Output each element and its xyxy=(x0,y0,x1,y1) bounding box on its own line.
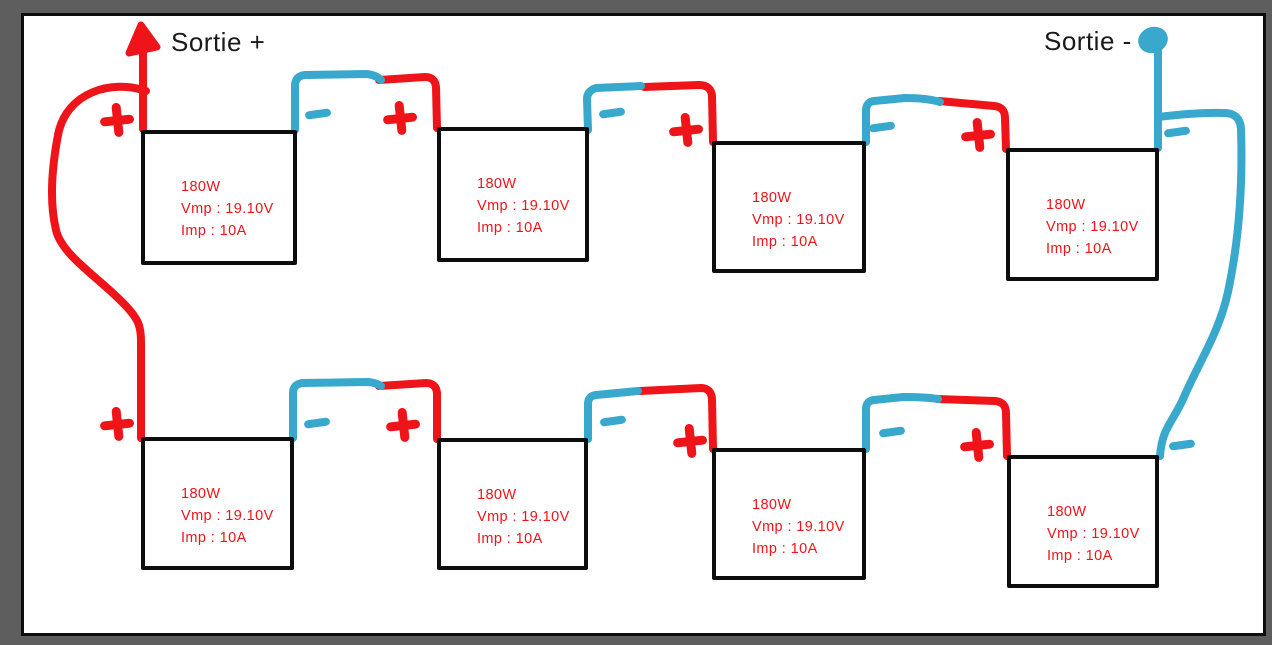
panel-spec: 180W Vmp : 19.10V Imp : 10A xyxy=(477,173,570,239)
panel-imp: Imp : 10A xyxy=(752,538,845,560)
plus-icon xyxy=(384,406,421,443)
panel-imp: Imp : 10A xyxy=(181,220,274,242)
panel-power: 180W xyxy=(477,173,570,195)
panel-spec: 180W Vmp : 19.10V Imp : 10A xyxy=(1047,501,1140,567)
panel-imp: Imp : 10A xyxy=(1047,545,1140,567)
plus-icon xyxy=(667,111,704,148)
panel-vmp: Vmp : 19.10V xyxy=(752,516,845,538)
panel-power: 180W xyxy=(1046,194,1139,216)
plus-icon xyxy=(381,99,418,136)
plus-icon xyxy=(98,405,135,442)
panel-spec: 180W Vmp : 19.10V Imp : 10A xyxy=(752,494,845,560)
panel-power: 180W xyxy=(1047,501,1140,523)
panel-vmp: Vmp : 19.10V xyxy=(752,209,845,231)
panel-power: 180W xyxy=(181,483,274,505)
panel-vmp: Vmp : 19.10V xyxy=(181,198,274,220)
panel-spec: 180W Vmp : 19.10V Imp : 10A xyxy=(181,483,274,549)
panel-imp: Imp : 10A xyxy=(477,528,570,550)
window-frame: Sortie + Sortie - 180W Vmp : 19.10V Imp … xyxy=(0,0,1272,645)
solar-panel-top-2: 180W Vmp : 19.10V Imp : 10A xyxy=(437,127,589,262)
panel-vmp: Vmp : 19.10V xyxy=(477,506,570,528)
panel-spec: 180W Vmp : 19.10V Imp : 10A xyxy=(1046,194,1139,260)
panel-power: 180W xyxy=(181,176,274,198)
panel-spec: 180W Vmp : 19.10V Imp : 10A xyxy=(752,187,845,253)
plus-icon xyxy=(959,116,996,153)
plus-icon xyxy=(98,101,135,138)
panel-vmp: Vmp : 19.10V xyxy=(1046,216,1139,238)
panel-imp: Imp : 10A xyxy=(181,527,274,549)
panel-imp: Imp : 10A xyxy=(1046,238,1139,260)
output-positive-label: Sortie + xyxy=(171,27,265,58)
solar-panel-bottom-3: 180W Vmp : 19.10V Imp : 10A xyxy=(712,448,866,580)
panel-spec: 180W Vmp : 19.10V Imp : 10A xyxy=(477,484,570,550)
panel-imp: Imp : 10A xyxy=(752,231,845,253)
panel-vmp: Vmp : 19.10V xyxy=(181,505,274,527)
plus-icon xyxy=(958,426,995,463)
solar-panel-bottom-2: 180W Vmp : 19.10V Imp : 10A xyxy=(437,438,588,570)
solar-panel-bottom-4: 180W Vmp : 19.10V Imp : 10A xyxy=(1007,455,1159,588)
panel-power: 180W xyxy=(752,494,845,516)
plus-icon xyxy=(671,422,708,459)
panel-vmp: Vmp : 19.10V xyxy=(1047,523,1140,545)
panel-imp: Imp : 10A xyxy=(477,217,570,239)
panel-power: 180W xyxy=(477,484,570,506)
output-negative-label: Sortie - xyxy=(1044,26,1132,57)
panel-power: 180W xyxy=(752,187,845,209)
panel-vmp: Vmp : 19.10V xyxy=(477,195,570,217)
solar-panel-top-4: 180W Vmp : 19.10V Imp : 10A xyxy=(1006,148,1159,281)
panel-spec: 180W Vmp : 19.10V Imp : 10A xyxy=(181,176,274,242)
solar-panel-top-1: 180W Vmp : 19.10V Imp : 10A xyxy=(141,130,297,265)
solar-panel-bottom-1: 180W Vmp : 19.10V Imp : 10A xyxy=(141,437,294,570)
solar-panel-top-3: 180W Vmp : 19.10V Imp : 10A xyxy=(712,141,866,273)
